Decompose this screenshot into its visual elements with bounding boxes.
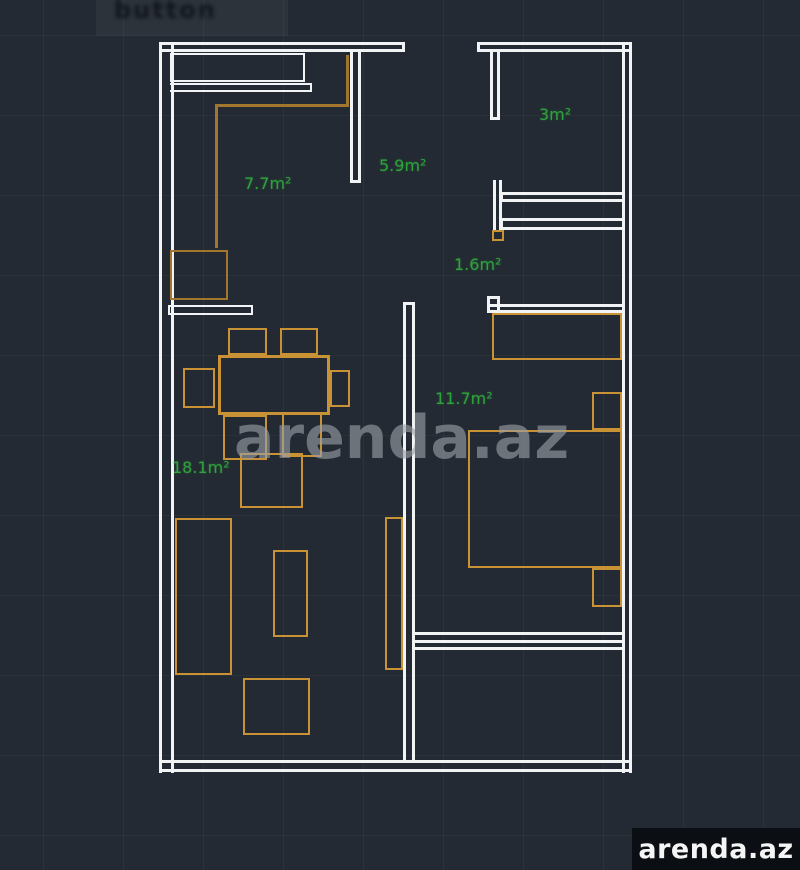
sofa [175,518,232,675]
kitchen-counter-strip [170,83,312,92]
wall-bedroom-top [487,304,622,313]
dining-chair-left [183,368,215,408]
dining-chair-top-left [228,328,267,355]
nightstand-bottom [592,568,622,607]
sideboard [385,517,403,670]
cropped-toolbar-remnant: button [96,0,288,36]
dining-chair-right [330,370,350,407]
wall-kitchen-hallway [350,52,361,183]
watermark-text: arenda.az [234,408,569,468]
area-label-hallway: 5.9m² [379,158,426,174]
kitchen-counter-block [170,53,305,82]
wall-corridor-lower [500,218,622,230]
floorplan-canvas: button 7.7m² 5.9m² 3m² [0,0,800,870]
logo-text: arenda.az [638,834,793,865]
coffee-table [273,550,308,637]
wall-corridor-upper [500,192,622,202]
wall-bathroom-top-line [415,647,622,650]
area-label-corridor: 1.6m² [454,257,501,273]
wall-living-bedroom [403,302,415,760]
dining-chair-top-right [280,328,318,355]
kitchen-worktop-edge-vertical-left [215,104,218,248]
kitchen-worktop-edge-horizontal [216,104,349,107]
nightstand-top [592,392,622,430]
wall-bedroom-bottom [415,632,622,643]
logo-badge: arenda.az [632,828,800,870]
wardrobe [492,313,622,360]
wall-left-exterior [159,42,174,773]
area-label-balcony: 3m² [539,107,571,123]
wall-bottom-exterior [159,760,632,772]
area-label-living: 18.1m² [172,460,230,476]
kitchen-wall-stub [168,305,253,315]
wall-right-exterior [622,42,632,773]
corridor-small-box [492,230,504,241]
illegible-cropped-text: button [114,0,217,24]
area-label-kitchen: 7.7m² [244,176,291,192]
kitchen-worktop-edge-vertical-right [346,55,349,107]
ottoman [243,678,310,735]
wall-top-exterior-left [159,42,405,52]
wall-top-exterior-right [477,42,632,52]
wall-balcony-left [490,52,500,120]
kitchen-appliance-box [170,250,228,300]
